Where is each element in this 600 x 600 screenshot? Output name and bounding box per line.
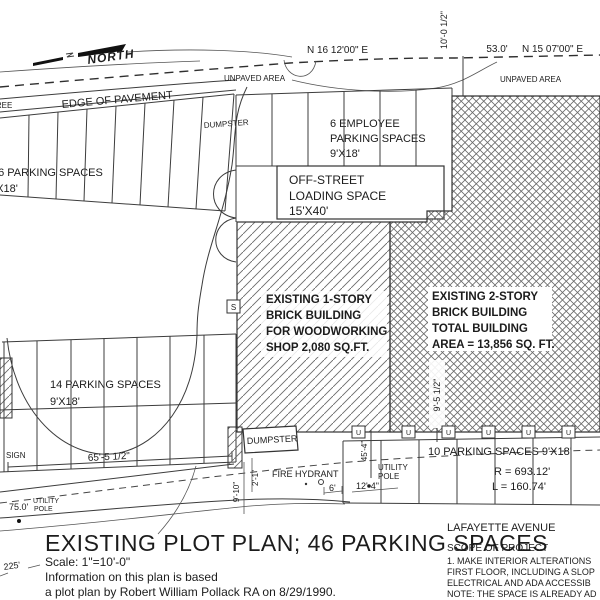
scope-line-1: 1. MAKE INTERIOR ALTERATIONS [447,556,591,566]
utility-left-label-1: UTILITY [33,498,59,505]
u-marker-label: U [566,430,571,437]
stall-divider [28,115,29,197]
two-story-label-3: TOTAL BUILDING [432,323,528,335]
stall-boundary [343,437,600,441]
stall-boundary [2,334,236,342]
u-marker-label: U [446,430,451,437]
u-marker-label: U [526,430,531,437]
u-marker-label: U [356,430,361,437]
fire-hydrant-label: FIRE HYDRANT [272,469,339,479]
plot-plan-svg: NORTH N 16 12'00" E N 15 07'00" E 53.0' … [0,0,600,600]
fire-hydrant-symbol [319,480,324,485]
drawing-note-1: Information on this plan is based [45,570,218,584]
scope-block: LAFAYETTE AVENUE SCOPE OF PROJECT 1. MAK… [447,522,597,599]
south-row-length: L = 160.74' [492,481,546,493]
dim-45-label: 45'-4" [360,441,369,462]
scope-heading: SCOPE OF PROJECT [447,543,548,554]
unpaved-left-label: UNPAVED AREA [224,74,286,83]
stall-divider [196,97,203,209]
scope-line-4: NOTE: THE SPACE IS ALREADY AD [447,589,597,599]
edge-hatched-block [0,358,12,418]
one-story-label-2: BRICK BUILDING [266,310,361,322]
u-marker-label: U [486,430,491,437]
utility-mid-label-1: UTILITY [378,463,408,472]
dim-6-label: 6' [329,483,336,493]
dim-9-10-label: 9'-10" [232,482,241,503]
drawing-note-2: a plot plan by Robert William Pollack RA… [45,585,336,599]
bearing-left-label: N 16 12'00" E [307,45,368,56]
dim-65-label: 65'-5 1/2" [88,451,131,464]
stall-boundary [0,403,236,410]
stall-boundary [0,462,236,472]
two-story-outline [390,96,600,432]
building-two-story: EXISTING 2-STORY BRICK BUILDING TOTAL BU… [390,96,600,442]
driveway-apron-curve [158,466,196,534]
north-arrow: NORTH [33,44,135,67]
employee-label-3: 9'X18' [330,148,360,160]
stall-divider [168,100,174,207]
north-row-size: 9'X18' [0,183,18,195]
curb-line [0,464,234,492]
north-row-label: 16 PARKING SPACES [0,167,103,179]
stall-divider [112,106,116,203]
dim-53-label: 53.0' [486,44,507,55]
tree-label: TREE [0,101,12,110]
one-story-label-1: EXISTING 1-STORY [266,294,372,306]
west-row-label: 14 PARKING SPACES [50,379,161,391]
west-row-size: 9'X18' [50,396,80,408]
point-marker [305,483,307,485]
s-marker-label: S [231,303,236,312]
dumpster-top-label: DUMPSTER [204,118,250,130]
dim-75-label: 75.0' [9,502,29,512]
dim-2-1-label: 2'-1" [251,470,260,486]
fire-hydrant-group: FIRE HYDRANT 6' [272,469,342,495]
stall-boundary [343,503,600,505]
north-arrow-zigzag [66,53,74,57]
utility-pole-mid-group: 45'-4" UTILITY POLE 12'-4" [352,430,408,492]
parking-row-north: 16 PARKING SPACES 9'X18' [0,94,234,211]
road-line [128,50,292,57]
two-story-label-4: AREA = 13,856 SQ. FT. [432,339,555,351]
loading-label-2: LOADING SPACE [289,189,386,203]
stall-divider [140,103,145,205]
dimension-65: 65'-5 1/2" SIGN [6,451,232,472]
loading-label-3: 15'X40' [289,204,328,218]
utility-pole-dot [17,519,21,523]
door-swing-arcs [214,170,237,262]
drawing-scale: Scale: 1"=10'-0" [45,555,130,569]
employee-label-1: 6 EMPLOYEE [330,118,400,130]
street-name-label: LAFAYETTE AVENUE [447,522,555,534]
scope-line-2: FIRST FLOOR, INCLUDING A SLOP [447,567,595,577]
unpaved-boundary-curve [292,62,497,91]
u-marker-label: U [406,430,411,437]
stall-divider [56,112,58,199]
unpaved-right-label: UNPAVED AREA [500,75,562,84]
hatched-strip [228,427,242,468]
two-story-label-1: EXISTING 2-STORY [432,291,538,303]
one-story-label-4: SHOP 2,080 SQ.FT. [266,342,369,354]
dim-12-label: 12'-4" [356,481,379,491]
dim-9-5-label: 9'-5 1/2" [432,379,442,412]
stall-divider [84,109,87,201]
south-row-radius: R = 693.12' [494,466,550,478]
loading-label-1: OFF-STREET [289,173,365,187]
two-story-label-2: BRICK BUILDING [432,307,527,319]
plot-plan-drawing: NORTH N 16 12'00" E N 15 07'00" E 53.0' … [0,0,600,600]
dim-10-0-label: 10'-0 1/2" [439,11,449,49]
one-story-label-3: FOR WOODWORKING [266,326,387,338]
scope-line-3: ELECTRICAL AND ADA ACCESSIB [447,578,591,588]
utility-left-label-2: POLE [34,506,53,513]
building-one-story: EXISTING 1-STORY BRICK BUILDING FOR WOOD… [227,222,390,432]
bearing-right-label: N 15 07'00" E [522,44,583,55]
driveway-curve [7,87,247,454]
dim-225-label: 225' [3,560,21,572]
north-arrow-tail [33,57,63,66]
south-row-label: 10 PARKING SPACES 9'X18' [428,446,572,458]
sign-label: SIGN [6,451,26,460]
